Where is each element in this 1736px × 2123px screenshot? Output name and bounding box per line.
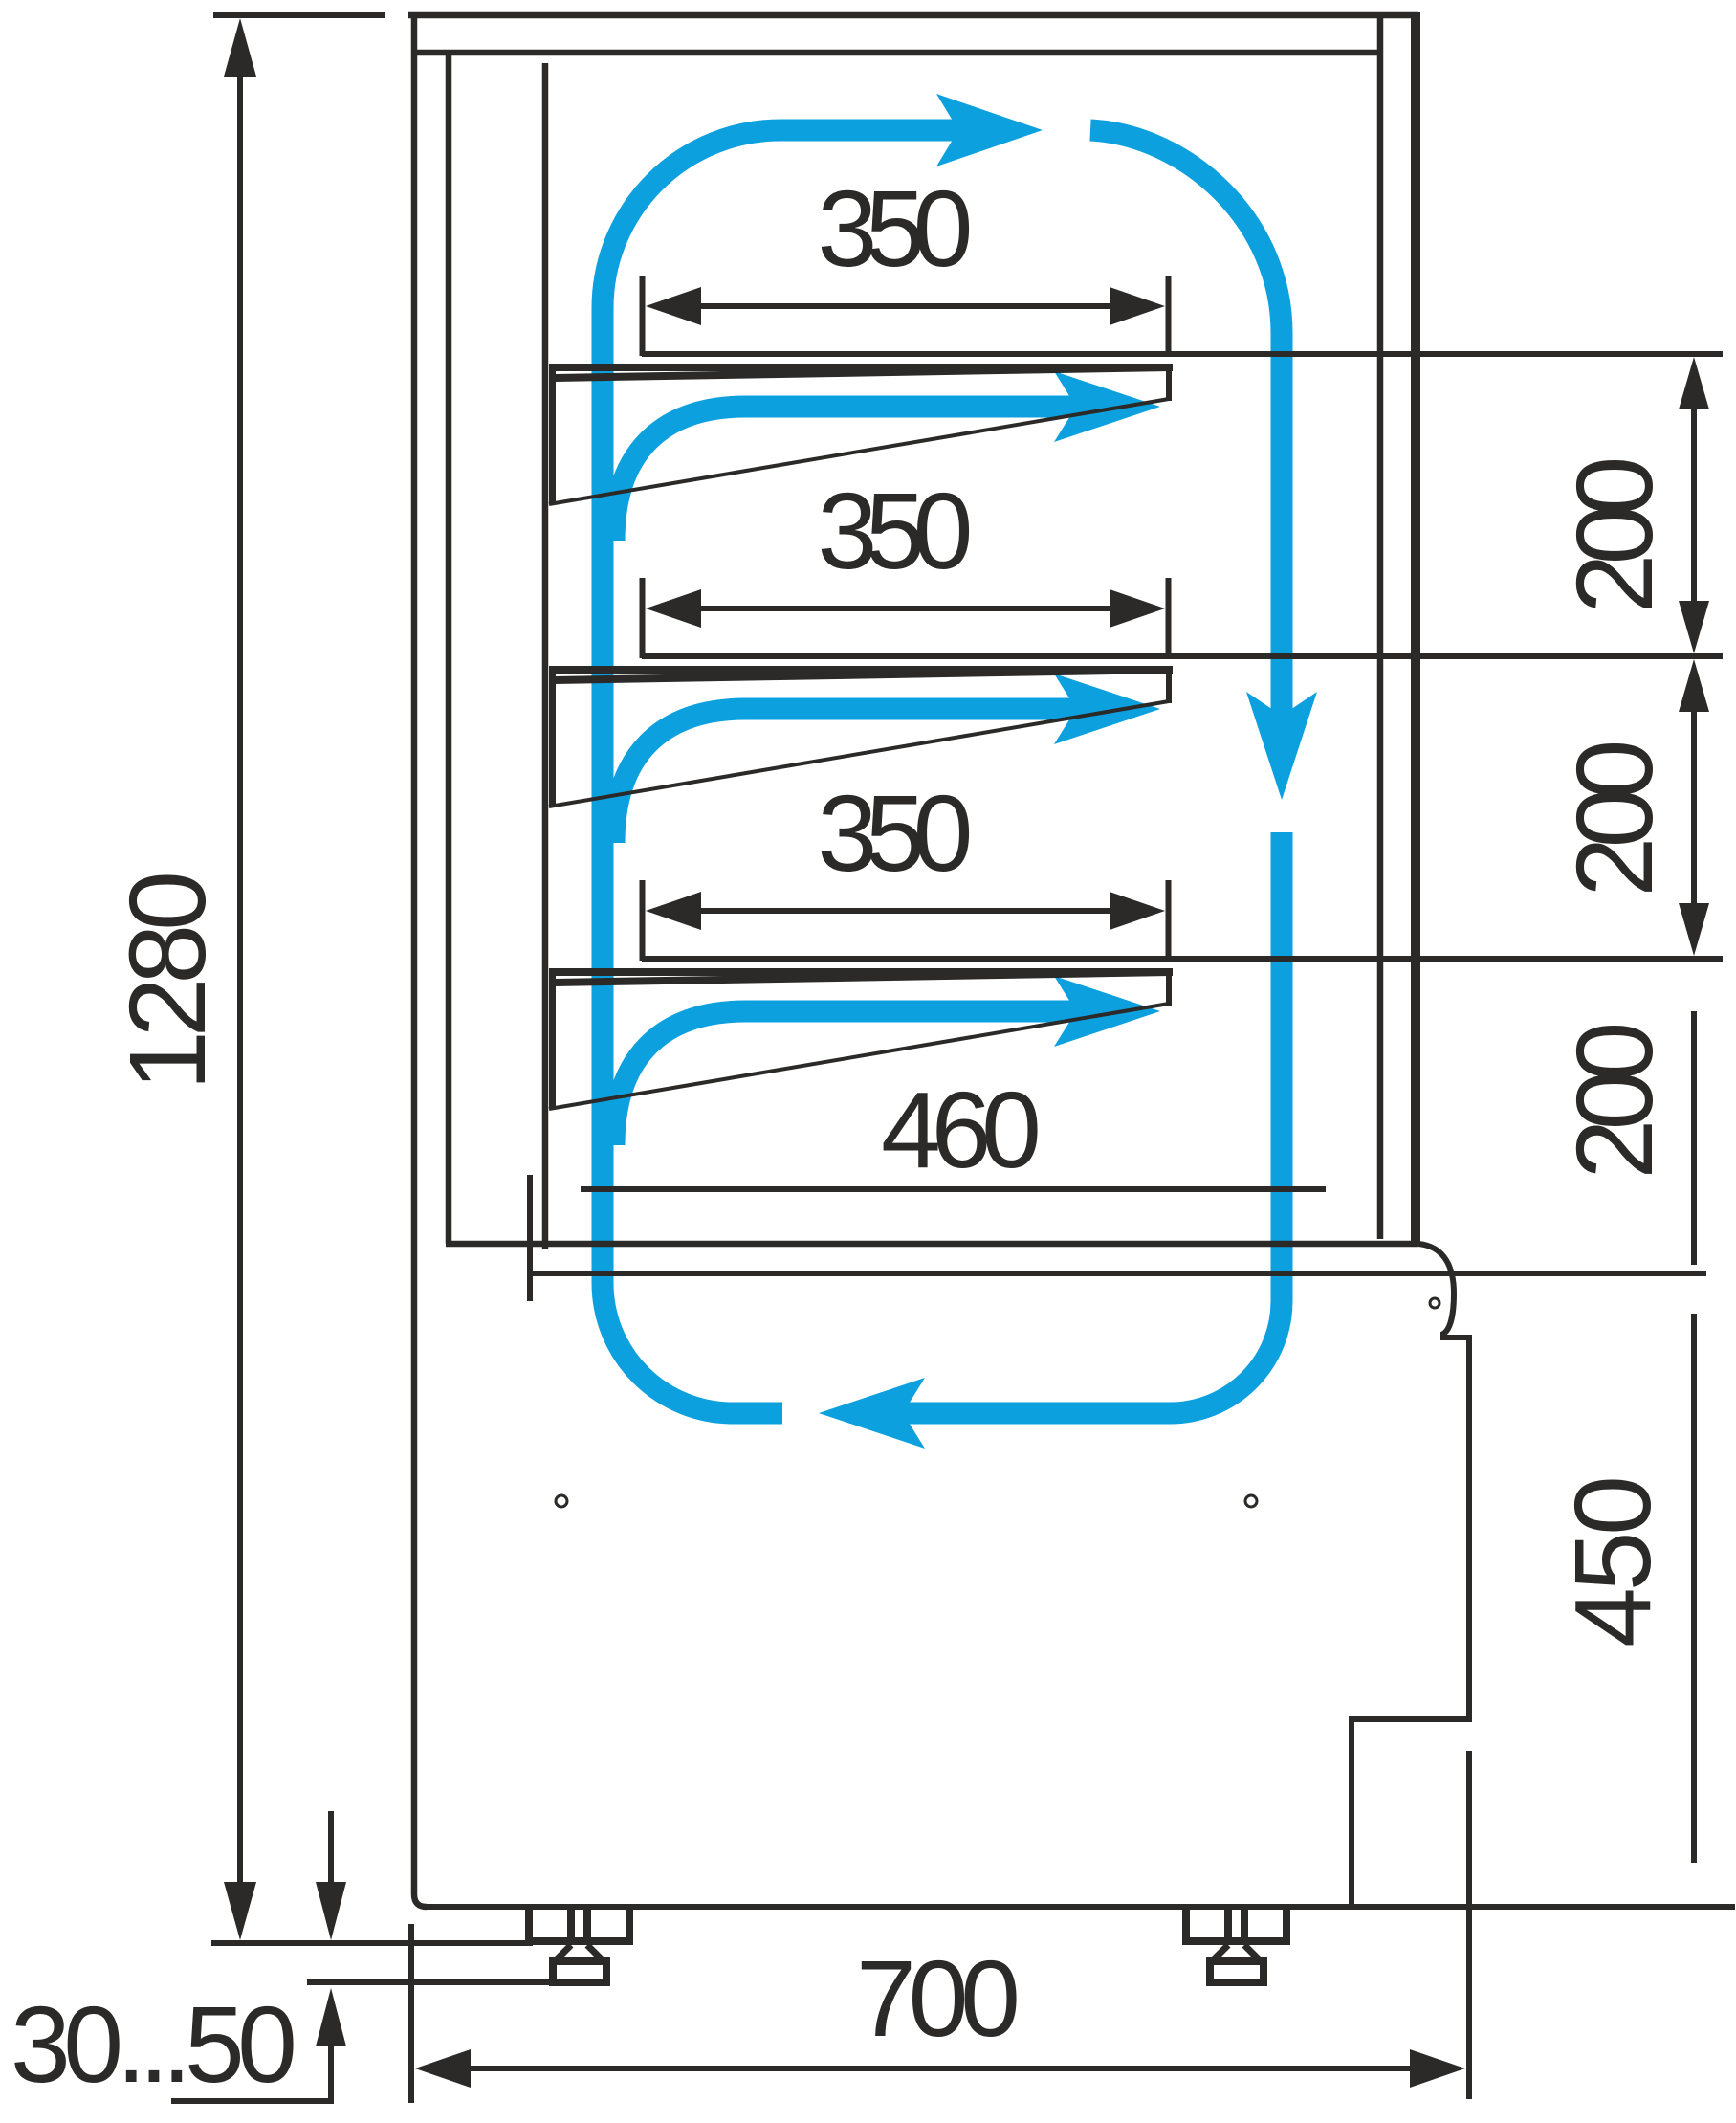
svg-text:450: 450 [1552, 1475, 1673, 1648]
svg-text:350: 350 [818, 168, 974, 289]
svg-text:1280: 1280 [107, 871, 228, 1091]
svg-text:350: 350 [818, 471, 974, 591]
svg-text:200: 200 [1554, 1022, 1675, 1180]
svg-text:200: 200 [1554, 456, 1675, 614]
svg-text:30...50: 30...50 [11, 1984, 297, 2105]
svg-text:460: 460 [881, 1070, 1042, 1190]
svg-text:200: 200 [1554, 740, 1675, 897]
svg-text:700: 700 [856, 1938, 1021, 2059]
svg-text:350: 350 [818, 773, 974, 894]
